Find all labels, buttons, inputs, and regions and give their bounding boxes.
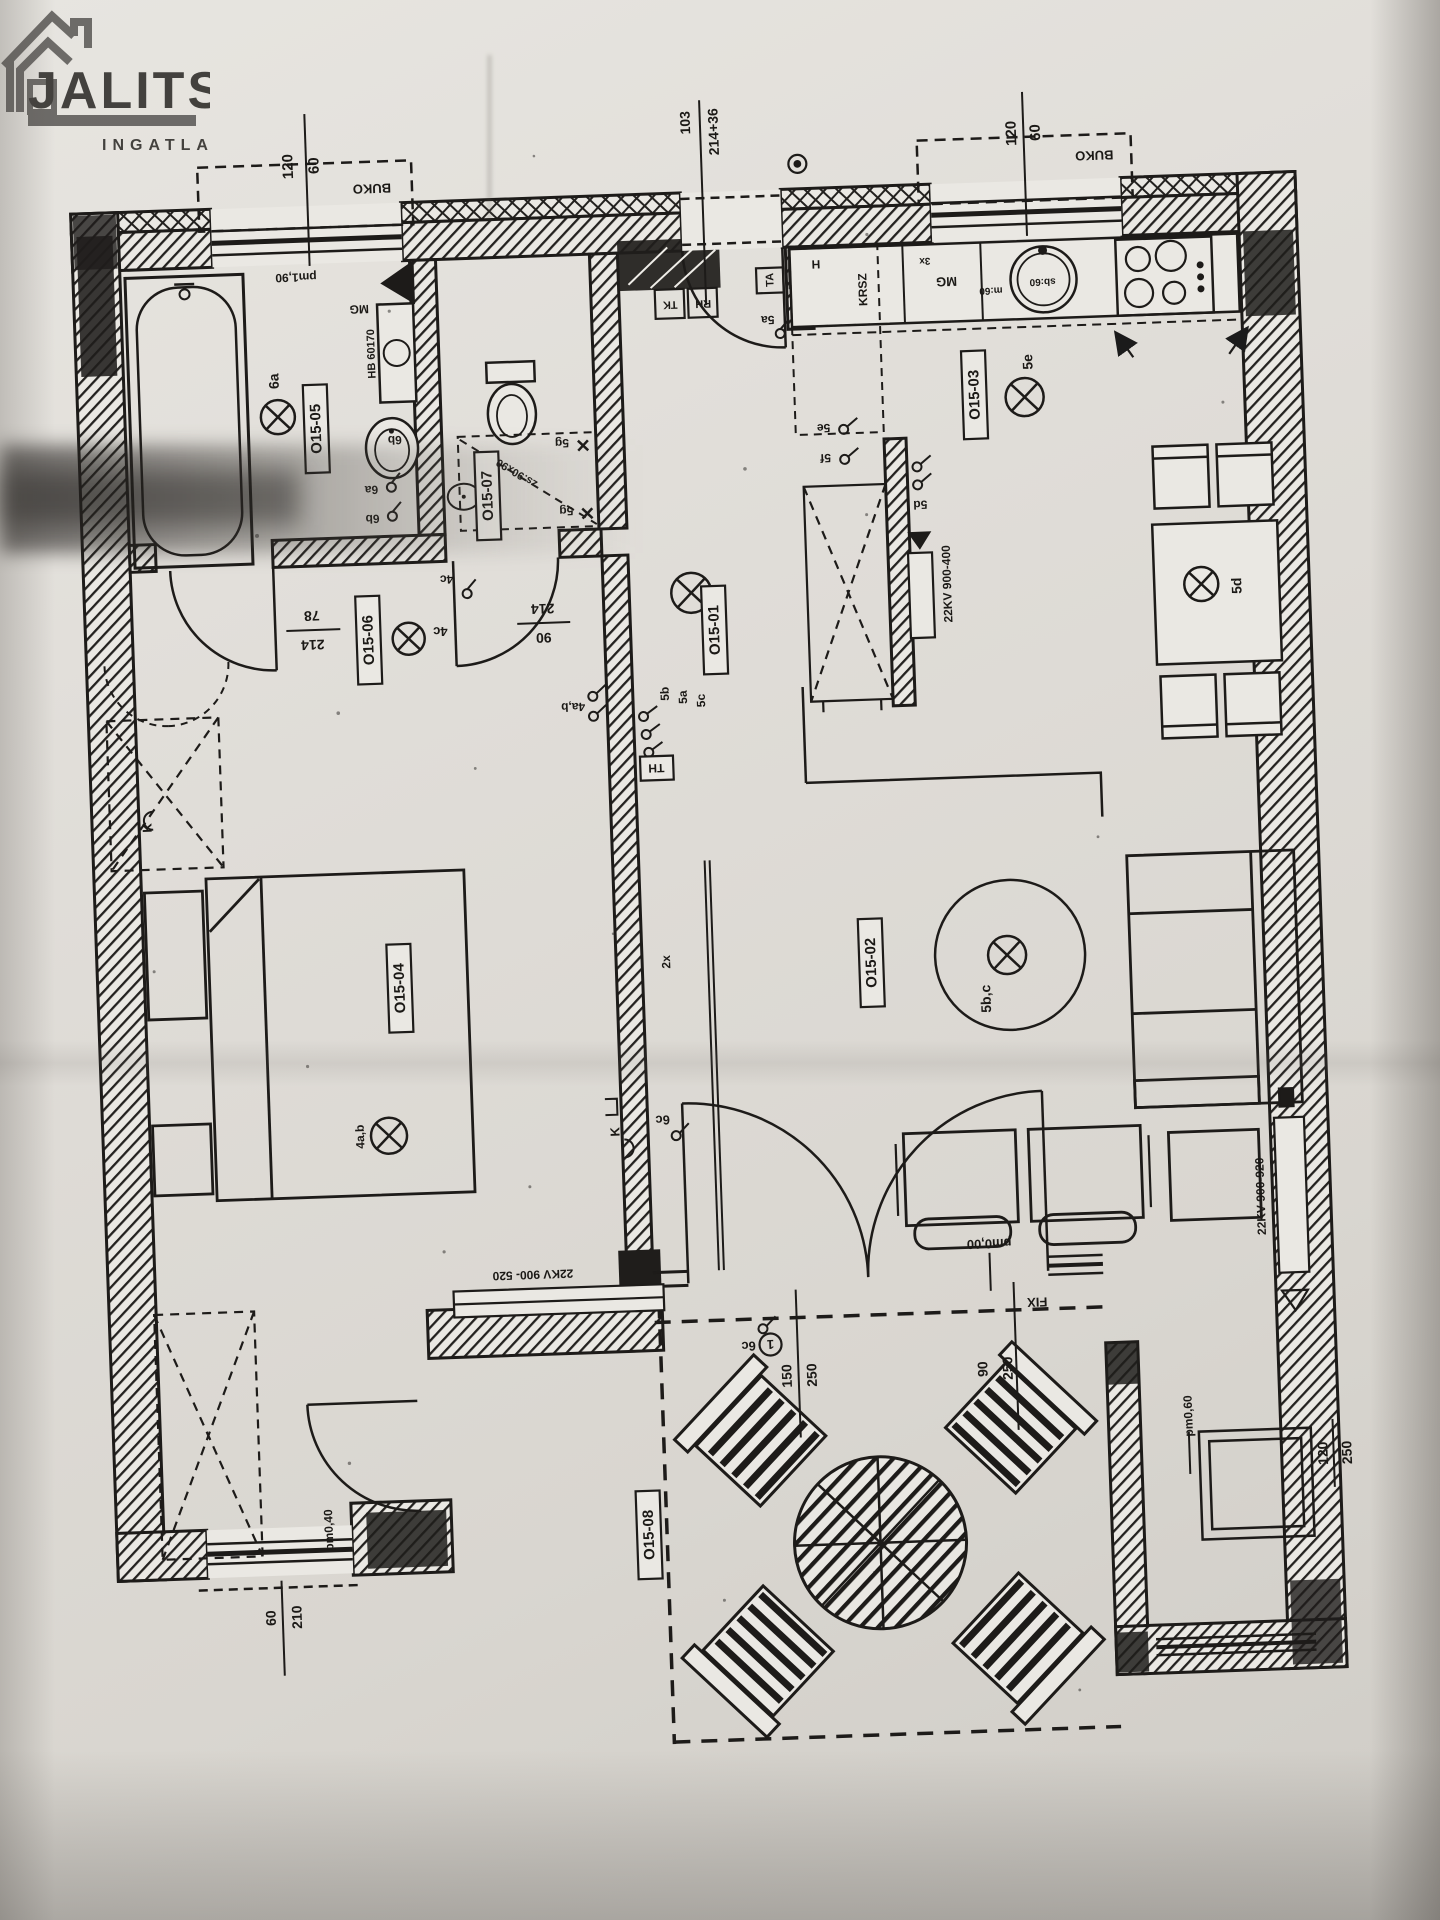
- dining-set: [1149, 442, 1284, 738]
- terrace-table: [792, 1454, 970, 1632]
- dim-left-window-120: 120: [279, 154, 297, 180]
- label-5g-2: 5g: [559, 504, 573, 518]
- dim-side-win-210: 210: [288, 1605, 305, 1629]
- label-buko-left: BUKO: [353, 181, 392, 197]
- dim-right-window-60: 60: [1027, 124, 1045, 141]
- bathtub: [125, 274, 253, 568]
- dim-terrace-win-90: 90: [974, 1361, 991, 1377]
- corridor-switch-icon: [671, 1123, 689, 1140]
- hall-wardrobe: [804, 484, 894, 713]
- label-rad-bedroom: 22KV 900- 520: [492, 1266, 573, 1283]
- label-light-4ab: 4a,b: [353, 1124, 368, 1148]
- nightstand: [153, 1124, 213, 1196]
- label-rad-living: 22KV 900-920: [1252, 1157, 1269, 1235]
- dim-entry-214-36: 214+36: [704, 108, 722, 156]
- dim-bath-door-78: 78: [304, 608, 320, 625]
- bedroom-light-icon: [370, 1117, 407, 1154]
- label-switch-5a-entry: 5a: [761, 313, 775, 327]
- label-switch-6c: 6c: [655, 1112, 670, 1127]
- room-label-bedroom: O15-04: [390, 962, 409, 1013]
- label-switch-5c: 5c: [694, 693, 708, 707]
- dim-bed-door-214: 214: [531, 601, 555, 618]
- label-buko-right: BUKO: [1075, 147, 1114, 163]
- paper-speckles: [125, 131, 1270, 1723]
- dim-terrace-door-150: 150: [778, 1364, 795, 1388]
- armchair: [895, 1130, 1019, 1250]
- kitchen-counter: [789, 233, 1249, 435]
- kitchen-light-icon: [1005, 377, 1044, 416]
- label-switch-5e: 5e: [816, 421, 830, 435]
- floor-plan-drawing: O15-05 O15-07 O15-06 O15-01 O15-03 O15-0…: [0, 0, 1440, 1920]
- bedroom-wardrobe-tall: [154, 1312, 262, 1560]
- label-light-4c: 4c: [433, 624, 448, 639]
- label-tk: TK: [663, 298, 678, 311]
- label-switch-5b: 5b: [658, 687, 672, 701]
- label-switch-5a: 5a: [676, 690, 690, 704]
- terrace-chair: [946, 1566, 1104, 1724]
- dim-side-win-60: 60: [263, 1610, 280, 1626]
- scanned-floor-plan-photo: O15-05 O15-07 O15-06 O15-01 O15-03 O15-0…: [0, 0, 1440, 1920]
- label-rad-kitchen: 22KV 900-400: [939, 545, 956, 623]
- label-fridge-h: H: [811, 257, 820, 271]
- label-3x: 3x: [919, 255, 931, 266]
- dim-entry-103: 103: [676, 111, 693, 135]
- dim-terrace-win-250: 250: [999, 1356, 1016, 1380]
- watermark-underline: [28, 115, 196, 126]
- label-ta: TA: [764, 273, 776, 287]
- label-sink-size: sb:60: [1029, 275, 1056, 287]
- label-shower-size: zs:90x90: [494, 456, 540, 490]
- room-label-terrace: O15-08: [640, 1510, 659, 1561]
- label-dishwasher-mg: MG: [936, 274, 957, 290]
- room-label-vestibule: O15-06: [359, 615, 378, 666]
- room-label-bathroom: O15-05: [307, 403, 326, 454]
- label-level-terrace: pm0,00: [967, 1236, 1012, 1253]
- round-rug: [933, 877, 1088, 1032]
- room-label-hall: O15-01: [705, 605, 724, 656]
- label-switch-6c-terrace: 6c: [741, 1339, 756, 1354]
- washbasin: [365, 417, 419, 479]
- label-socket-5d: 5d: [913, 498, 927, 512]
- label-light-5e: 5e: [1019, 354, 1036, 370]
- dim-nook-win-250: 250: [1338, 1440, 1355, 1464]
- level-bath-window: pm1,90: [275, 270, 317, 285]
- label-switch-6b: 6b: [365, 512, 379, 526]
- label-switch-5f: 5f: [819, 451, 831, 465]
- vent-shaft-icon: [380, 260, 416, 305]
- bath-switches-icon: [386, 473, 401, 521]
- watermark-title: JALITS: [28, 62, 210, 120]
- nightstand: [144, 891, 206, 1020]
- dim-right-window-120: 120: [1002, 121, 1020, 147]
- label-switch-4c: 4c: [439, 572, 453, 586]
- hall-switches-icon: [639, 706, 663, 757]
- living-light-icon: [987, 935, 1026, 974]
- label-krsz: KRSZ: [855, 273, 870, 306]
- coffee-table: [1168, 1129, 1261, 1220]
- label-light-5d: 5d: [1228, 577, 1245, 594]
- label-light-5bc: 5b,c: [977, 984, 994, 1013]
- bedroom-door-switch-icon: [588, 685, 607, 721]
- label-thermostat: TH: [648, 761, 664, 776]
- room-label-kitchen: O15-03: [965, 370, 984, 421]
- label-basin-6b: 6b: [388, 433, 402, 447]
- toilet: [486, 361, 537, 445]
- room-label-wc: O15-07: [478, 471, 497, 522]
- label-outlet-k2: K: [607, 1126, 622, 1137]
- dim-bath-door-214: 214: [301, 637, 325, 654]
- vestibule-light-icon: [391, 579, 478, 655]
- label-rh: RH: [695, 297, 711, 310]
- dim-bed-door-90: 90: [535, 630, 551, 647]
- room-label-living: O15-02: [862, 937, 881, 988]
- bed: [144, 870, 475, 1203]
- partition-lines: [699, 677, 1118, 1271]
- label-switch-6a: 6a: [364, 483, 378, 497]
- label-5g-1: 5g: [555, 436, 569, 450]
- label-level-nook: pm0,60: [1181, 1395, 1196, 1437]
- dim-nook-win-120: 120: [1314, 1441, 1331, 1465]
- label-outlet-k1: K: [139, 822, 154, 833]
- bath-light-icon: [260, 400, 295, 435]
- label-switch-4ab: 4a,b: [561, 700, 585, 715]
- dim-terrace-door-250: 250: [803, 1363, 820, 1387]
- label-washer-mg: MG: [349, 302, 369, 317]
- kitchen-radiator: [907, 532, 935, 638]
- label-washer-model: HB 60170: [365, 329, 379, 379]
- dim-left-window-60: 60: [305, 157, 323, 174]
- label-note-1: 1: [767, 1337, 775, 1352]
- label-level-side: pm0,40: [321, 1509, 336, 1551]
- watermark-subtitle: INGATLAN: [102, 137, 210, 154]
- label-fix: FIX: [1027, 1294, 1048, 1310]
- label-2x: 2x: [659, 955, 673, 969]
- label-dw-size: m:60: [979, 284, 1003, 296]
- washing-machine: [376, 260, 419, 402]
- agency-watermark: JALITS INGATLAN: [0, 0, 210, 165]
- label-light-6a: 6a: [265, 373, 282, 389]
